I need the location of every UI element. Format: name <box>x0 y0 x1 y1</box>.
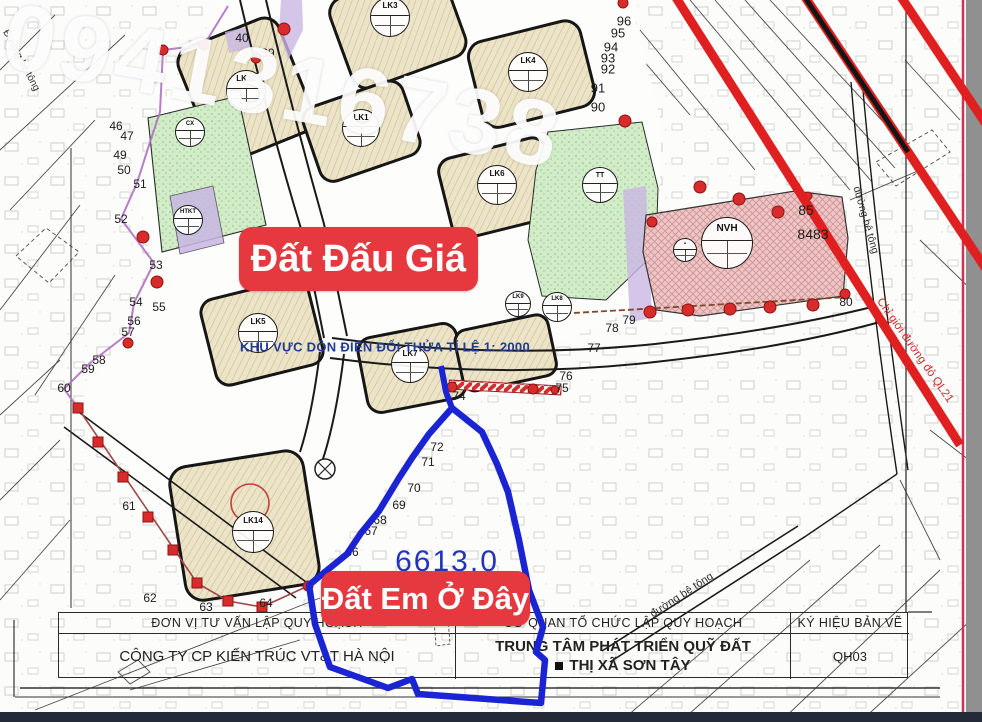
planning-map-screenshot: LK3LK12LK4LK1LK6TTCXHTKTLK5LK7LK9LK8LK14… <box>0 0 982 722</box>
my-land-tag: Đất Em Ở Đây <box>321 571 530 626</box>
auction-land-tag: Đất Đấu Giá <box>239 227 478 291</box>
bottom-dark-band <box>0 712 982 722</box>
